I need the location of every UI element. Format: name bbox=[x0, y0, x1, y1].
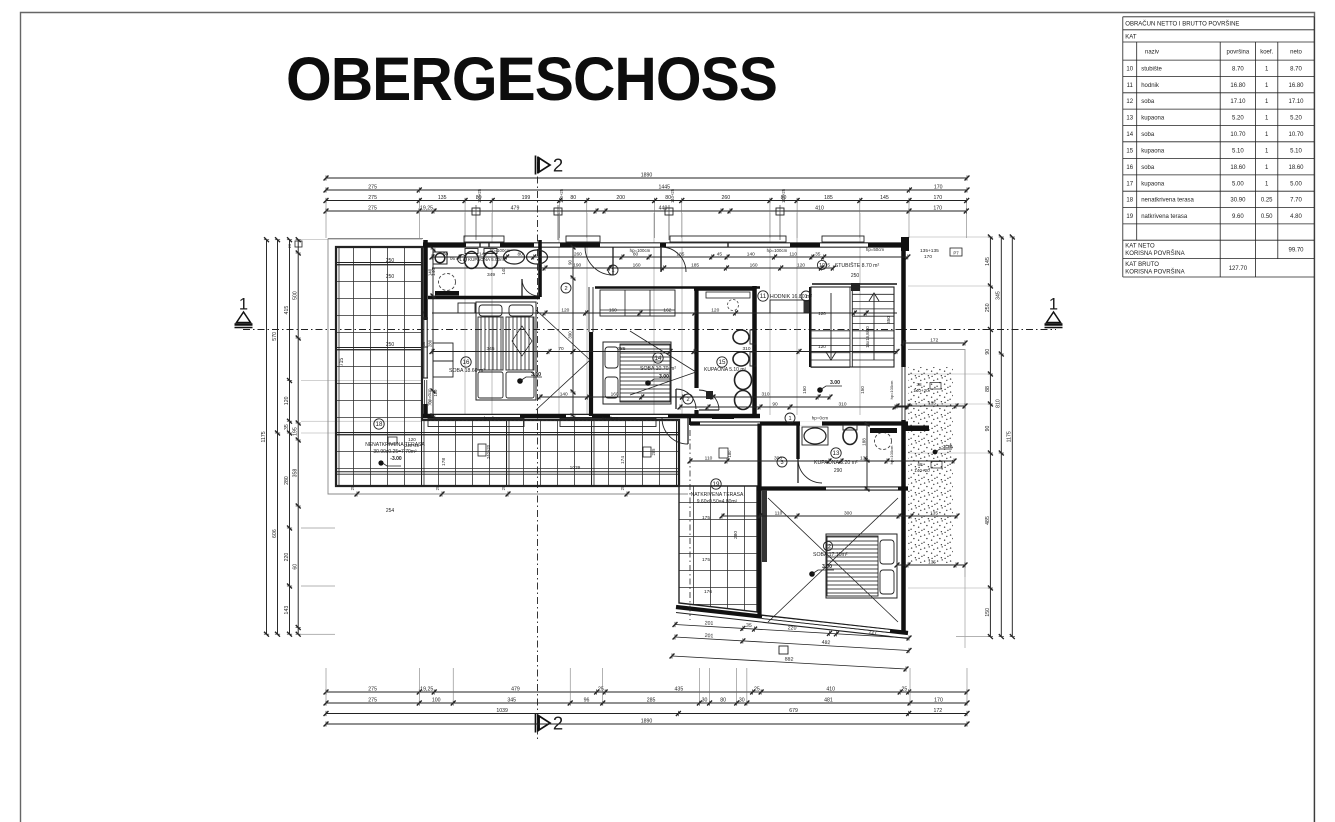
svg-text:30.90x0.25=7.70m²: 30.90x0.25=7.70m² bbox=[373, 449, 417, 455]
svg-text:349: 349 bbox=[487, 272, 495, 278]
svg-text:481: 481 bbox=[824, 697, 833, 703]
svg-text:11: 11 bbox=[1127, 83, 1134, 89]
svg-text:185: 185 bbox=[676, 251, 684, 257]
svg-text:310: 310 bbox=[742, 346, 750, 352]
svg-text:13: 13 bbox=[1126, 116, 1133, 122]
svg-text:1039: 1039 bbox=[570, 465, 581, 471]
svg-text:254: 254 bbox=[386, 508, 395, 514]
svg-text:275: 275 bbox=[368, 697, 377, 703]
svg-text:-3.30: -3.30 bbox=[942, 444, 953, 450]
svg-text:KORISNA POVRŠINA: KORISNA POVRŠINA bbox=[1125, 269, 1184, 276]
svg-text:KUPAONA 5.00m²: KUPAONA 5.00m² bbox=[468, 257, 506, 262]
svg-text:145: 145 bbox=[985, 257, 991, 266]
svg-text:280: 280 bbox=[733, 531, 739, 539]
svg-text:19: 19 bbox=[713, 481, 720, 488]
svg-text:140: 140 bbox=[560, 391, 568, 397]
svg-text:2: 2 bbox=[564, 286, 567, 292]
svg-text:606: 606 bbox=[272, 529, 278, 538]
svg-text:3.00: 3.00 bbox=[659, 374, 669, 380]
svg-text:140+25: 140+25 bbox=[559, 188, 564, 203]
svg-text:250: 250 bbox=[386, 258, 395, 264]
svg-text:25: 25 bbox=[435, 485, 440, 490]
svg-text:25: 25 bbox=[350, 485, 355, 490]
svg-text:99.70: 99.70 bbox=[1288, 248, 1304, 254]
svg-text:185: 185 bbox=[824, 195, 833, 201]
svg-text:482: 482 bbox=[821, 640, 830, 646]
svg-text:5.20: 5.20 bbox=[1290, 116, 1302, 122]
svg-text:120: 120 bbox=[561, 307, 569, 313]
svg-text:17: 17 bbox=[1126, 181, 1133, 187]
svg-text:190: 190 bbox=[573, 262, 581, 268]
svg-text:140+25: 140+25 bbox=[477, 188, 482, 203]
svg-text:-3.00: -3.00 bbox=[390, 456, 402, 462]
svg-text:96: 96 bbox=[584, 697, 590, 703]
svg-text:310: 310 bbox=[762, 391, 770, 397]
svg-text:5.00: 5.00 bbox=[1290, 181, 1302, 187]
svg-text:345: 345 bbox=[507, 697, 516, 703]
svg-text:19,25: 19,25 bbox=[420, 686, 433, 692]
svg-text:290: 290 bbox=[834, 468, 843, 474]
svg-text:150: 150 bbox=[985, 608, 991, 617]
svg-text:16.80: 16.80 bbox=[1288, 83, 1304, 89]
svg-text:188: 188 bbox=[861, 438, 866, 446]
svg-text:30: 30 bbox=[739, 697, 745, 703]
svg-text:8.70: 8.70 bbox=[1232, 66, 1244, 72]
svg-text:201: 201 bbox=[704, 633, 713, 639]
svg-text:300: 300 bbox=[844, 510, 852, 516]
svg-text:16x16,8/30: 16x16,8/30 bbox=[865, 326, 870, 348]
svg-text:199: 199 bbox=[522, 195, 531, 201]
svg-text:285: 285 bbox=[651, 448, 656, 456]
svg-text:35: 35 bbox=[284, 424, 290, 430]
svg-text:1175: 1175 bbox=[1007, 431, 1013, 442]
svg-text:195: 195 bbox=[293, 427, 299, 436]
svg-text:17.10: 17.10 bbox=[1230, 99, 1246, 105]
svg-text:1: 1 bbox=[1265, 165, 1269, 171]
svg-text:240+20: 240+20 bbox=[405, 443, 420, 448]
svg-text:hp=100cm: hp=100cm bbox=[630, 248, 651, 253]
svg-text:160: 160 bbox=[750, 262, 758, 268]
svg-text:280: 280 bbox=[284, 476, 290, 485]
svg-text:160: 160 bbox=[609, 307, 617, 313]
svg-text:7.70: 7.70 bbox=[1290, 198, 1302, 204]
svg-text:1175: 1175 bbox=[261, 431, 267, 442]
svg-text:275: 275 bbox=[368, 686, 377, 692]
svg-text:250: 250 bbox=[985, 303, 991, 312]
svg-text:38: 38 bbox=[916, 382, 922, 387]
svg-text:25: 25 bbox=[620, 485, 625, 490]
svg-text:175: 175 bbox=[702, 557, 710, 563]
svg-text:18: 18 bbox=[1126, 198, 1133, 204]
svg-text:1: 1 bbox=[1265, 83, 1269, 89]
svg-text:415: 415 bbox=[284, 306, 290, 315]
svg-text:88: 88 bbox=[985, 386, 991, 392]
svg-text:STUBIŠTE 8.70 m²: STUBIŠTE 8.70 m² bbox=[835, 262, 880, 269]
svg-text:površina: površina bbox=[1227, 50, 1250, 56]
svg-text:soba: soba bbox=[1141, 99, 1155, 105]
svg-text:OBRAČUN NETTO I BRUTTO POVRŠIN: OBRAČUN NETTO I BRUTTO POVRŠINE bbox=[1125, 21, 1239, 28]
svg-text:OBERGESCHOSS: OBERGESCHOSS bbox=[286, 45, 777, 113]
svg-text:275: 275 bbox=[368, 184, 377, 190]
svg-text:172: 172 bbox=[930, 337, 938, 343]
svg-text:410: 410 bbox=[815, 205, 824, 211]
svg-text:679: 679 bbox=[789, 708, 798, 714]
svg-text:9.60: 9.60 bbox=[1232, 214, 1244, 220]
svg-text:KUPAONA 5.10 m²: KUPAONA 5.10 m² bbox=[704, 367, 746, 373]
svg-text:140+20: 140+20 bbox=[913, 388, 929, 393]
svg-text:135+135: 135+135 bbox=[920, 248, 939, 254]
svg-text:275: 275 bbox=[368, 205, 377, 211]
svg-text:3.00: 3.00 bbox=[822, 564, 832, 570]
svg-text:285: 285 bbox=[617, 346, 625, 352]
svg-text:140+20: 140+20 bbox=[914, 468, 930, 473]
svg-text:140: 140 bbox=[747, 251, 755, 257]
svg-text:10: 10 bbox=[1126, 66, 1133, 72]
svg-text:90: 90 bbox=[985, 426, 991, 432]
svg-text:170: 170 bbox=[934, 697, 943, 703]
svg-text:135: 135 bbox=[928, 400, 936, 405]
svg-text:345: 345 bbox=[486, 346, 494, 352]
svg-text:10.70: 10.70 bbox=[1288, 132, 1304, 138]
svg-text:soba: soba bbox=[1141, 132, 1155, 138]
svg-text:0.25: 0.25 bbox=[1261, 198, 1273, 204]
svg-text:345: 345 bbox=[996, 291, 1002, 300]
svg-text:479: 479 bbox=[511, 205, 520, 211]
svg-text:350: 350 bbox=[886, 316, 891, 324]
svg-text:NATKRIVENA TERASA: NATKRIVENA TERASA bbox=[691, 492, 744, 498]
svg-text:80: 80 bbox=[518, 251, 524, 257]
svg-text:9.60x0.50=4.80m²: 9.60x0.50=4.80m² bbox=[697, 499, 738, 505]
svg-text:19: 19 bbox=[1126, 214, 1133, 220]
svg-text:570: 570 bbox=[272, 332, 278, 341]
svg-text:3.00: 3.00 bbox=[830, 380, 840, 386]
svg-text:68: 68 bbox=[917, 462, 923, 467]
svg-text:hodnik: hodnik bbox=[1141, 83, 1160, 89]
svg-text:1890: 1890 bbox=[641, 718, 653, 724]
svg-text:90: 90 bbox=[985, 349, 991, 355]
svg-text:KORISNA POVRŠINA: KORISNA POVRŠINA bbox=[1125, 250, 1184, 257]
svg-text:135: 135 bbox=[928, 559, 936, 564]
svg-text:310: 310 bbox=[838, 401, 846, 407]
svg-text:25: 25 bbox=[902, 686, 908, 692]
svg-text:140: 140 bbox=[427, 268, 432, 276]
svg-text:17.10: 17.10 bbox=[1288, 99, 1304, 105]
svg-text:koef.: koef. bbox=[1260, 50, 1273, 56]
svg-text:naziv: naziv bbox=[1145, 50, 1159, 56]
svg-text:260: 260 bbox=[574, 251, 582, 257]
svg-text:1: 1 bbox=[1265, 99, 1269, 105]
svg-text:1: 1 bbox=[1265, 66, 1269, 72]
svg-text:nenatkrivena terasa: nenatkrivena terasa bbox=[1141, 198, 1194, 204]
svg-text:KAT: KAT bbox=[1125, 34, 1137, 40]
svg-text:100: 100 bbox=[432, 697, 441, 703]
svg-text:174: 174 bbox=[620, 456, 626, 464]
svg-text:715: 715 bbox=[339, 358, 345, 367]
svg-text:145: 145 bbox=[880, 195, 889, 201]
svg-text:stubište: stubište bbox=[1141, 66, 1162, 72]
svg-text:180: 180 bbox=[727, 450, 732, 458]
svg-text:10.70: 10.70 bbox=[1230, 132, 1246, 138]
svg-text:18: 18 bbox=[376, 421, 383, 428]
svg-text:5.20: 5.20 bbox=[1232, 116, 1244, 122]
svg-text:485: 485 bbox=[985, 516, 991, 525]
svg-text:60: 60 bbox=[293, 564, 299, 570]
svg-text:140: 140 bbox=[479, 251, 487, 257]
svg-text:240+20: 240+20 bbox=[486, 444, 491, 459]
svg-text:15: 15 bbox=[719, 359, 726, 366]
svg-text:1: 1 bbox=[1265, 181, 1269, 187]
svg-text:35: 35 bbox=[746, 623, 752, 629]
svg-text:16.80: 16.80 bbox=[1230, 83, 1246, 89]
svg-text:160: 160 bbox=[633, 262, 641, 268]
svg-text:162: 162 bbox=[663, 307, 671, 313]
svg-text:5.10: 5.10 bbox=[1290, 148, 1302, 154]
svg-text:1890: 1890 bbox=[641, 172, 653, 178]
svg-text:1445: 1445 bbox=[659, 184, 671, 190]
svg-text:150: 150 bbox=[802, 386, 807, 394]
svg-text:hp=0cm: hp=0cm bbox=[602, 416, 619, 421]
svg-text:hp=0cm: hp=0cm bbox=[484, 416, 501, 421]
svg-text:35: 35 bbox=[815, 251, 821, 257]
svg-text:285: 285 bbox=[647, 697, 656, 703]
svg-text:358: 358 bbox=[293, 469, 299, 478]
svg-text:220: 220 bbox=[284, 553, 290, 562]
svg-text:natkrivena terasa: natkrivena terasa bbox=[1141, 214, 1188, 220]
svg-text:1: 1 bbox=[804, 294, 807, 300]
svg-text:neto: neto bbox=[1290, 50, 1302, 56]
svg-text:300: 300 bbox=[774, 455, 782, 461]
svg-text:143: 143 bbox=[284, 606, 290, 615]
svg-text:178: 178 bbox=[441, 458, 447, 466]
svg-text:1: 1 bbox=[788, 416, 791, 422]
svg-text:4.80: 4.80 bbox=[1290, 214, 1302, 220]
svg-text:1039: 1039 bbox=[496, 708, 508, 714]
svg-text:250: 250 bbox=[386, 342, 395, 348]
svg-text:KAT NETO: KAT NETO bbox=[1125, 244, 1155, 250]
svg-text:25: 25 bbox=[287, 243, 292, 248]
svg-text:35: 35 bbox=[421, 310, 426, 315]
svg-text:882: 882 bbox=[785, 656, 794, 662]
svg-text:150: 150 bbox=[860, 386, 865, 394]
svg-text:2: 2 bbox=[553, 155, 563, 176]
svg-text:30: 30 bbox=[702, 697, 708, 703]
svg-text:250: 250 bbox=[851, 273, 860, 279]
svg-text:135: 135 bbox=[930, 510, 938, 516]
svg-text:140+25: 140+25 bbox=[781, 188, 786, 203]
svg-text:14: 14 bbox=[1126, 132, 1133, 138]
svg-text:500: 500 bbox=[293, 291, 299, 300]
svg-text:1: 1 bbox=[1265, 116, 1269, 122]
svg-text:135: 135 bbox=[438, 195, 447, 201]
svg-text:0.50: 0.50 bbox=[1261, 214, 1273, 220]
svg-text:120: 120 bbox=[818, 344, 826, 349]
svg-text:110: 110 bbox=[775, 510, 783, 516]
svg-text:2: 2 bbox=[686, 397, 689, 403]
svg-text:35: 35 bbox=[825, 262, 831, 268]
svg-text:16: 16 bbox=[1126, 165, 1133, 171]
svg-text:90: 90 bbox=[567, 260, 572, 265]
svg-text:25: 25 bbox=[501, 485, 506, 490]
svg-text:hp=50cm: hp=50cm bbox=[866, 247, 885, 252]
svg-text:120: 120 bbox=[408, 437, 416, 442]
svg-text:410: 410 bbox=[826, 686, 835, 692]
svg-text:80: 80 bbox=[570, 195, 576, 201]
svg-text:120: 120 bbox=[818, 311, 826, 316]
svg-text:110: 110 bbox=[789, 251, 797, 257]
svg-text:80: 80 bbox=[443, 251, 449, 257]
svg-text:30.90: 30.90 bbox=[1230, 198, 1246, 204]
svg-text:810: 810 bbox=[996, 399, 1002, 408]
svg-text:11: 11 bbox=[760, 293, 767, 300]
svg-text:201: 201 bbox=[704, 620, 713, 626]
svg-text:120: 120 bbox=[797, 262, 805, 268]
svg-text:80: 80 bbox=[720, 697, 726, 703]
svg-text:185: 185 bbox=[691, 262, 699, 268]
svg-text:176: 176 bbox=[704, 589, 712, 595]
svg-text:hp=0cm: hp=0cm bbox=[812, 416, 829, 421]
svg-text:170: 170 bbox=[934, 184, 943, 190]
svg-text:18.60: 18.60 bbox=[1288, 165, 1304, 171]
svg-text:15: 15 bbox=[1126, 148, 1133, 154]
svg-text:120: 120 bbox=[711, 307, 719, 313]
svg-text:70: 70 bbox=[558, 346, 564, 352]
svg-text:kupaona: kupaona bbox=[1141, 181, 1165, 187]
svg-text:P7: P7 bbox=[953, 251, 959, 256]
svg-text:8.70: 8.70 bbox=[1290, 66, 1302, 72]
svg-text:hp=100cm: hp=100cm bbox=[889, 445, 894, 464]
svg-text:1: 1 bbox=[1265, 148, 1269, 154]
svg-text:25: 25 bbox=[754, 686, 760, 692]
svg-text:140+25: 140+25 bbox=[670, 188, 675, 203]
svg-text:1: 1 bbox=[1265, 132, 1269, 138]
svg-text:KAT BRUTO: KAT BRUTO bbox=[1125, 262, 1159, 268]
svg-text:19,25: 19,25 bbox=[420, 205, 433, 211]
svg-text:390: 390 bbox=[567, 331, 572, 339]
svg-text:5.00: 5.00 bbox=[1232, 181, 1244, 187]
svg-text:16: 16 bbox=[463, 359, 470, 366]
svg-text:280: 280 bbox=[427, 339, 432, 347]
svg-text:3.00: 3.00 bbox=[531, 372, 541, 378]
svg-text:110: 110 bbox=[705, 455, 713, 461]
svg-text:127.70: 127.70 bbox=[1229, 266, 1248, 272]
svg-text:435: 435 bbox=[675, 686, 684, 692]
svg-text:90: 90 bbox=[772, 401, 778, 407]
svg-text:35: 35 bbox=[421, 341, 426, 346]
svg-text:275: 275 bbox=[368, 195, 377, 201]
svg-text:479: 479 bbox=[511, 686, 520, 692]
svg-text:172: 172 bbox=[933, 708, 942, 714]
svg-text:175: 175 bbox=[702, 515, 710, 521]
svg-text:200: 200 bbox=[616, 195, 625, 201]
svg-text:170: 170 bbox=[933, 195, 942, 201]
svg-text:hp=100cm: hp=100cm bbox=[767, 248, 788, 253]
svg-text:13: 13 bbox=[833, 450, 840, 457]
svg-text:250: 250 bbox=[386, 274, 395, 280]
svg-text:12: 12 bbox=[1126, 99, 1133, 105]
svg-text:160: 160 bbox=[611, 391, 619, 397]
svg-text:1: 1 bbox=[611, 268, 614, 274]
svg-text:2: 2 bbox=[553, 713, 563, 734]
svg-text:170: 170 bbox=[924, 254, 932, 260]
svg-text:120: 120 bbox=[284, 396, 290, 405]
svg-text:kupaona: kupaona bbox=[1141, 116, 1165, 122]
svg-text:5.10: 5.10 bbox=[1232, 148, 1244, 154]
svg-text:45: 45 bbox=[717, 251, 723, 257]
svg-text:kupaona: kupaona bbox=[1141, 148, 1165, 154]
svg-text:260: 260 bbox=[722, 195, 731, 201]
svg-text:hp=100cm: hp=100cm bbox=[490, 248, 511, 253]
svg-text:70: 70 bbox=[427, 401, 432, 406]
svg-text:hp=100cm: hp=100cm bbox=[889, 380, 894, 399]
svg-text:soba: soba bbox=[1141, 165, 1155, 171]
svg-text:18.60: 18.60 bbox=[1230, 165, 1246, 171]
svg-text:170: 170 bbox=[933, 205, 942, 211]
